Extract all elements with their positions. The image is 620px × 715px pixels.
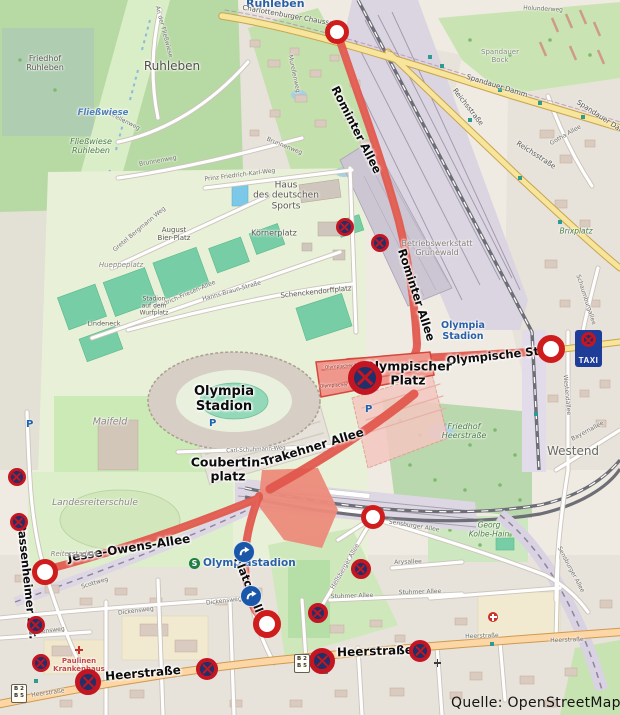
parking-icon-2: P — [209, 418, 216, 429]
closure-marker-charlottenburger — [325, 20, 349, 44]
no-stopping-marker-heilsberger — [351, 559, 371, 579]
roundabout-arrow-icon — [237, 545, 251, 559]
no-stopping-marker-dickensweg-2 — [32, 654, 50, 672]
closure-marker-flatowallee — [253, 610, 281, 638]
route-shield-b2-b5-west: B 2 B 5 — [11, 684, 27, 703]
sbahn-logo-icon: S — [189, 558, 200, 569]
closure-marker-olympische-str — [537, 335, 565, 363]
roundabout-arrow-icon — [244, 589, 258, 603]
map-canvas: Ruhleben Olympia Stadion Olympiastadion … — [0, 0, 620, 715]
no-stopping-marker-heerstrasse-2 — [196, 658, 218, 680]
no-stopping-marker-heerstrasse-3 — [309, 648, 335, 674]
roundabout-marker-flatowallee-2 — [240, 585, 262, 607]
taxi-sign-label: TAXI — [579, 356, 599, 365]
taxi-stand-sign: TAXI — [575, 330, 602, 367]
no-stopping-marker-passenheimer-2 — [10, 513, 28, 531]
roundabout-marker-flatowallee-1 — [233, 541, 255, 563]
no-stopping-marker-passenheimer-1 — [8, 468, 26, 486]
hospital-icon — [488, 612, 498, 622]
church-cross-icon — [434, 659, 441, 667]
closure-marker-jesse-owens — [32, 559, 58, 585]
no-stopping-marker-heerstrasse-1 — [75, 669, 101, 695]
paulinen-hospital-cross-icon — [75, 646, 83, 654]
no-stopping-marker-koernerplatz-2 — [371, 234, 389, 252]
parking-icon-3: P — [365, 404, 372, 415]
closure-marker-sensburger — [361, 505, 385, 529]
route-shield-b2-b5-east: B 2 B 5 — [294, 654, 310, 673]
no-stopping-marker-olympischer-platz — [348, 361, 382, 395]
no-stopping-marker-koernerplatz-1 — [336, 218, 354, 236]
no-stopping-icon — [581, 332, 596, 347]
parking-icon-1: P — [26, 419, 33, 430]
no-stopping-marker-dickensweg-1 — [27, 616, 45, 634]
no-stopping-marker-stuhmer — [308, 603, 328, 623]
no-stopping-marker-heerstrasse-4 — [409, 640, 431, 662]
